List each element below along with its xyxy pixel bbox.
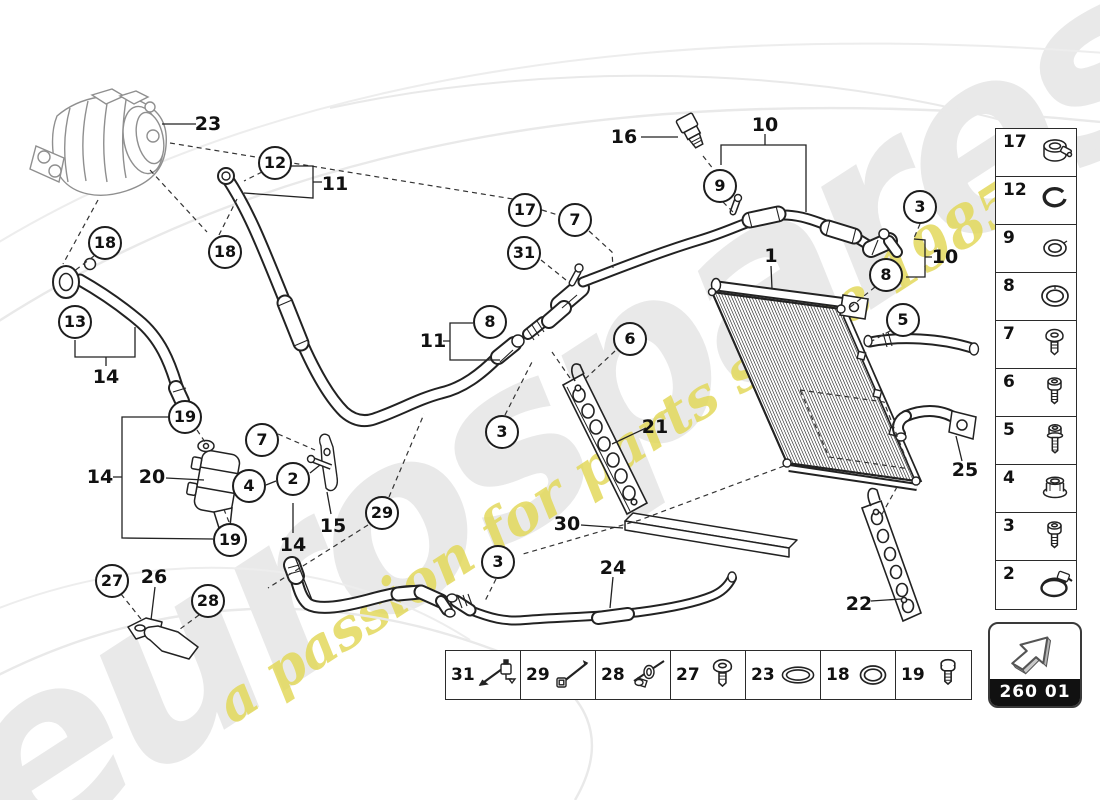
callout-label-10[interactable]: 10 bbox=[932, 246, 958, 268]
hose-clamp-icon bbox=[1035, 564, 1075, 604]
callout-circle-28[interactable]: 28 bbox=[191, 584, 225, 618]
pipe-clamp-icon bbox=[1035, 132, 1075, 172]
strip-part-29[interactable]: 29 bbox=[521, 651, 596, 699]
strip-part-18[interactable]: 18 bbox=[821, 651, 896, 699]
callout-circle-5[interactable]: 5 bbox=[886, 303, 920, 337]
callout-label-22[interactable]: 22 bbox=[846, 593, 872, 615]
sidebar-part-12[interactable]: 12 bbox=[996, 177, 1076, 225]
callout-label-10[interactable]: 10 bbox=[752, 114, 778, 136]
callout-label-16[interactable]: 16 bbox=[611, 126, 637, 148]
o-ring-icon bbox=[1035, 276, 1075, 316]
callout-circle-7[interactable]: 7 bbox=[558, 203, 592, 237]
callout-label-14[interactable]: 14 bbox=[93, 366, 119, 388]
callout-label-1[interactable]: 1 bbox=[764, 245, 777, 267]
callout-circle-18[interactable]: 18 bbox=[208, 235, 242, 269]
o-ring-s-icon bbox=[1035, 228, 1075, 268]
compressor-hose bbox=[218, 168, 543, 421]
part-number: 28 bbox=[601, 665, 625, 685]
callout-circle-19[interactable]: 19 bbox=[168, 400, 202, 434]
callout-circle-3[interactable]: 3 bbox=[903, 190, 937, 224]
part-number: 12 bbox=[1003, 180, 1027, 200]
short-bolt-icon bbox=[926, 654, 970, 696]
sidebar-part-3[interactable]: 3 bbox=[996, 513, 1076, 561]
parts-diagram-canvas: eurospares a passion for parts since 198… bbox=[0, 0, 1100, 800]
callout-circle-8[interactable]: 8 bbox=[869, 258, 903, 292]
callout-label-15[interactable]: 15 bbox=[320, 515, 346, 537]
strip-part-27[interactable]: 27 bbox=[671, 651, 746, 699]
callout-circle-4[interactable]: 4 bbox=[232, 469, 266, 503]
sidebar-part-8[interactable]: 8 bbox=[996, 273, 1076, 321]
callout-circle-3[interactable]: 3 bbox=[481, 545, 515, 579]
sidebar-part-4[interactable]: 4 bbox=[996, 465, 1076, 513]
callout-label-11[interactable]: 11 bbox=[420, 330, 446, 352]
socket-bolt-icon bbox=[1035, 372, 1075, 412]
callout-label-14[interactable]: 14 bbox=[87, 466, 113, 488]
callout-label-26[interactable]: 26 bbox=[141, 566, 167, 588]
strip-part-31[interactable]: 31 bbox=[446, 651, 521, 699]
strip-part-23[interactable]: 23 bbox=[746, 651, 821, 699]
part-number: 3 bbox=[1003, 516, 1015, 536]
compressor-illustration bbox=[30, 89, 169, 195]
callout-label-21[interactable]: 21 bbox=[642, 416, 668, 438]
part-number: 4 bbox=[1003, 468, 1015, 488]
callout-circle-31[interactable]: 31 bbox=[507, 236, 541, 270]
fasteners-strip: 31292827231819 bbox=[445, 650, 972, 700]
pressure-sensor-16 bbox=[676, 113, 707, 151]
sidebar-part-5[interactable]: 5 bbox=[996, 417, 1076, 465]
sidebar-part-7[interactable]: 7 bbox=[996, 321, 1076, 369]
callout-label-11[interactable]: 11 bbox=[322, 173, 348, 195]
part-number: 6 bbox=[1003, 372, 1015, 392]
callout-label-23[interactable]: 23 bbox=[195, 113, 221, 135]
part-number: 19 bbox=[901, 665, 925, 685]
parts-sidebar: 171298765432 bbox=[995, 128, 1077, 610]
part-number: 23 bbox=[751, 665, 775, 685]
part-number: 9 bbox=[1003, 228, 1015, 248]
part-number: 5 bbox=[1003, 420, 1015, 440]
callout-circle-27[interactable]: 27 bbox=[95, 564, 129, 598]
part-number: 18 bbox=[826, 665, 850, 685]
arrow-icon bbox=[990, 624, 1080, 679]
callout-circle-19[interactable]: 19 bbox=[213, 523, 247, 557]
part-number: 7 bbox=[1003, 324, 1015, 344]
sidebar-part-9[interactable]: 9 bbox=[996, 225, 1076, 273]
pan-screw-icon bbox=[701, 654, 745, 696]
part-number: 29 bbox=[526, 665, 550, 685]
strip-part-19[interactable]: 19 bbox=[896, 651, 971, 699]
o-ring-m-icon bbox=[851, 654, 895, 696]
part-number: 8 bbox=[1003, 276, 1015, 296]
callout-circle-18[interactable]: 18 bbox=[88, 226, 122, 260]
callout-circle-29[interactable]: 29 bbox=[365, 496, 399, 530]
cable-tie-icon bbox=[551, 654, 595, 696]
callout-label-14[interactable]: 14 bbox=[280, 534, 306, 556]
callout-circle-8[interactable]: 8 bbox=[473, 305, 507, 339]
part-number: 27 bbox=[676, 665, 700, 685]
sidebar-part-17[interactable]: 17 bbox=[996, 129, 1076, 177]
part-number: 17 bbox=[1003, 132, 1027, 152]
diagram-code-label: 260 01 bbox=[990, 679, 1080, 706]
o-ring-xl-icon bbox=[776, 654, 820, 696]
strip-part-28[interactable]: 28 bbox=[596, 651, 671, 699]
bracket-21 bbox=[563, 364, 647, 514]
tube-part-5 bbox=[864, 336, 979, 356]
callout-circle-9[interactable]: 9 bbox=[703, 169, 737, 203]
callout-label-25[interactable]: 25 bbox=[952, 459, 978, 481]
fitting-part-25 bbox=[896, 411, 976, 441]
hose-14-bottom bbox=[292, 565, 455, 617]
clip-icon bbox=[626, 654, 670, 696]
callout-label-24[interactable]: 24 bbox=[600, 557, 626, 579]
callout-label-30[interactable]: 30 bbox=[554, 513, 580, 535]
callout-circle-6[interactable]: 6 bbox=[613, 322, 647, 356]
sidebar-part-2[interactable]: 2 bbox=[996, 561, 1076, 609]
part-number: 2 bbox=[1003, 564, 1015, 584]
pan-screw-icon bbox=[1035, 324, 1075, 364]
part-number: 31 bbox=[451, 665, 475, 685]
callout-circle-7[interactable]: 7 bbox=[245, 423, 279, 457]
callout-circle-13[interactable]: 13 bbox=[58, 305, 92, 339]
callout-circle-12[interactable]: 12 bbox=[258, 146, 292, 180]
snap-ring-icon bbox=[1035, 180, 1075, 220]
flange-nut-icon bbox=[1035, 468, 1075, 508]
diagram-code-box[interactable]: 260 01 bbox=[988, 622, 1082, 708]
socket-bolt-icon bbox=[1035, 516, 1075, 556]
long-bolt-icon bbox=[1035, 420, 1075, 460]
callout-circle-17[interactable]: 17 bbox=[508, 193, 542, 227]
callout-label-20[interactable]: 20 bbox=[139, 466, 165, 488]
callout-circle-3[interactable]: 3 bbox=[485, 415, 519, 449]
seal-strip-30 bbox=[625, 513, 797, 557]
cable-tie-anchor-icon bbox=[476, 654, 520, 696]
sidebar-part-6[interactable]: 6 bbox=[996, 369, 1076, 417]
drain-hose-24 bbox=[447, 572, 736, 621]
callout-circle-2[interactable]: 2 bbox=[276, 462, 310, 496]
bracket-26 bbox=[128, 618, 198, 659]
bracket-15 bbox=[308, 434, 338, 490]
